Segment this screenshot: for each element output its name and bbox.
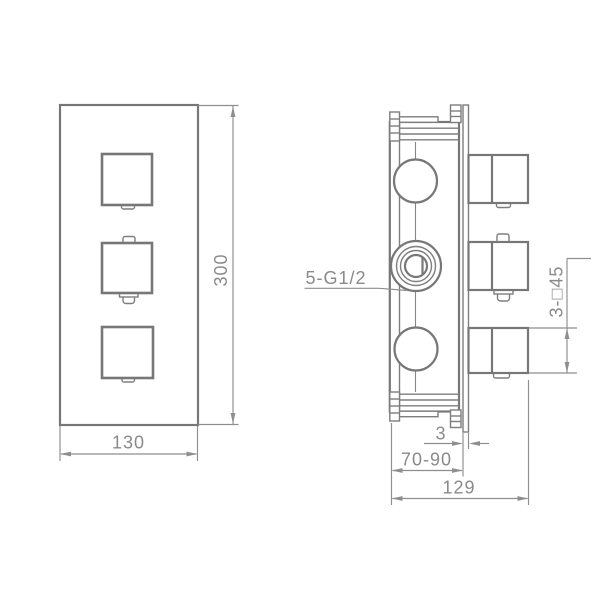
arrow-right <box>518 496 529 501</box>
block-outline <box>451 410 462 428</box>
dim-label-45: 3-□45 <box>547 266 567 318</box>
arrow-right <box>452 441 463 446</box>
arrow-right <box>187 452 198 457</box>
dim-label-129: 129 <box>442 478 475 498</box>
handle-2-square <box>102 243 152 293</box>
knob-body <box>469 155 529 203</box>
arrow-down <box>565 362 570 373</box>
top-cap-plate <box>398 117 438 123</box>
arrow-up <box>231 106 236 117</box>
port-outer-ring <box>391 241 441 291</box>
knob-body <box>469 242 529 290</box>
arrow-right <box>452 468 463 473</box>
technical-drawing-canvas: 300 130 <box>0 0 600 600</box>
arrow-left <box>60 452 71 457</box>
block-outline <box>451 105 462 123</box>
handle-3-square <box>102 327 153 378</box>
dim-label-3: 3 <box>435 424 446 444</box>
thread-label-text: 5-G1/2 <box>306 268 367 288</box>
dimension-handle-45: 3-□45 <box>529 259 591 374</box>
bottom-mounting-ear <box>390 392 400 421</box>
dim-label-130: 130 <box>112 433 145 453</box>
dimension-width-130: 130 <box>60 426 198 461</box>
side-knob-1 <box>469 155 529 208</box>
arrow-down <box>231 413 236 424</box>
side-knob-2 <box>469 234 529 301</box>
side-view <box>390 105 528 432</box>
dim-label-300: 300 <box>211 253 231 286</box>
side-knob-3 <box>469 328 529 378</box>
arrow-up <box>565 328 570 339</box>
dim-label-70-90: 70-90 <box>401 450 452 470</box>
top-fixing-block <box>451 105 462 123</box>
front-view <box>60 105 198 425</box>
thread-port-middle <box>391 241 441 291</box>
top-mounting-ear <box>390 112 400 141</box>
dimension-height-300: 300 <box>198 106 239 425</box>
bottom-fixing-block <box>451 410 462 428</box>
arrow-left <box>392 496 403 501</box>
arrow-left <box>469 441 480 446</box>
port-circle-top <box>394 160 437 203</box>
knob-body <box>469 328 529 373</box>
handle-1-square <box>102 154 152 205</box>
bottom-cap-plate <box>398 411 438 417</box>
port-circle-bottom <box>395 328 438 371</box>
